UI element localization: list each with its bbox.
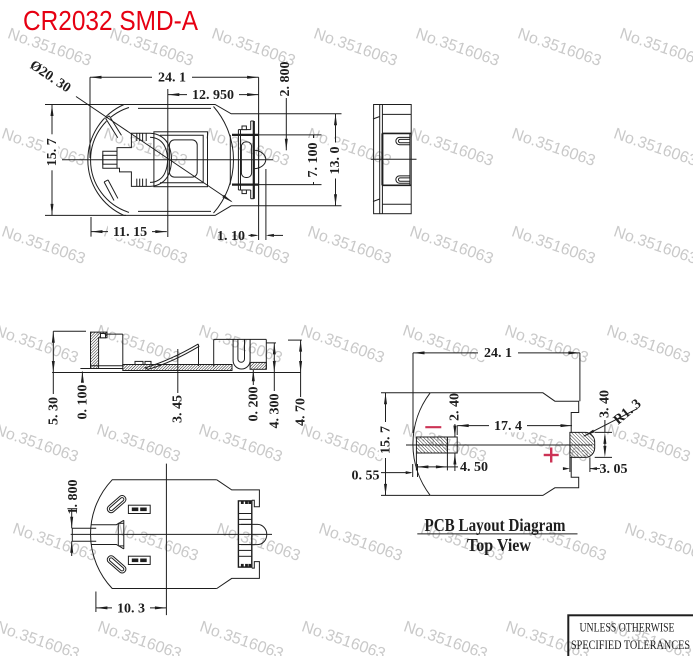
svg-text:17. 4: 17. 4 [494, 419, 522, 434]
svg-text:13. 0: 13. 0 [328, 147, 343, 175]
svg-text:11. 15: 11. 15 [113, 225, 147, 240]
svg-text:7. 100: 7. 100 [306, 143, 321, 178]
svg-text:1. 10: 1. 10 [217, 229, 245, 244]
svg-text:5. 30: 5. 30 [47, 397, 62, 425]
svg-text:CR2032 SMD-A: CR2032 SMD-A [23, 5, 198, 36]
svg-text:3. 40: 3. 40 [598, 390, 613, 418]
svg-text:4. 50: 4. 50 [460, 460, 488, 475]
svg-text:2. 40: 2. 40 [448, 393, 463, 421]
svg-text:4. 300: 4. 300 [268, 394, 283, 429]
svg-text:24. 1: 24. 1 [158, 71, 186, 86]
svg-text:3. 45: 3. 45 [171, 395, 186, 423]
svg-text:0. 200: 0. 200 [247, 387, 262, 422]
svg-text:PCB Layout Diagram: PCB Layout Diagram [425, 515, 566, 535]
svg-text:2. 800: 2. 800 [278, 62, 293, 97]
svg-text:24. 1: 24. 1 [484, 346, 512, 361]
svg-text:0. 100: 0. 100 [76, 385, 91, 420]
svg-text:3. 05: 3. 05 [600, 462, 628, 477]
svg-text:Top View: Top View [467, 535, 531, 555]
svg-text:15. 7: 15. 7 [379, 426, 394, 454]
svg-text:UNLESS OTHERWISE: UNLESS OTHERWISE [580, 620, 675, 635]
svg-text:10. 3: 10. 3 [117, 601, 145, 616]
svg-text:12. 950: 12. 950 [192, 88, 234, 103]
svg-text:1. 800: 1. 800 [66, 480, 81, 515]
svg-text:SPECIFIED TOLERANCES: SPECIFIED TOLERANCES [571, 637, 690, 652]
svg-text:15. 7: 15. 7 [45, 138, 60, 166]
svg-text:0. 55: 0. 55 [352, 469, 380, 484]
svg-text:4. 70: 4. 70 [294, 398, 309, 426]
